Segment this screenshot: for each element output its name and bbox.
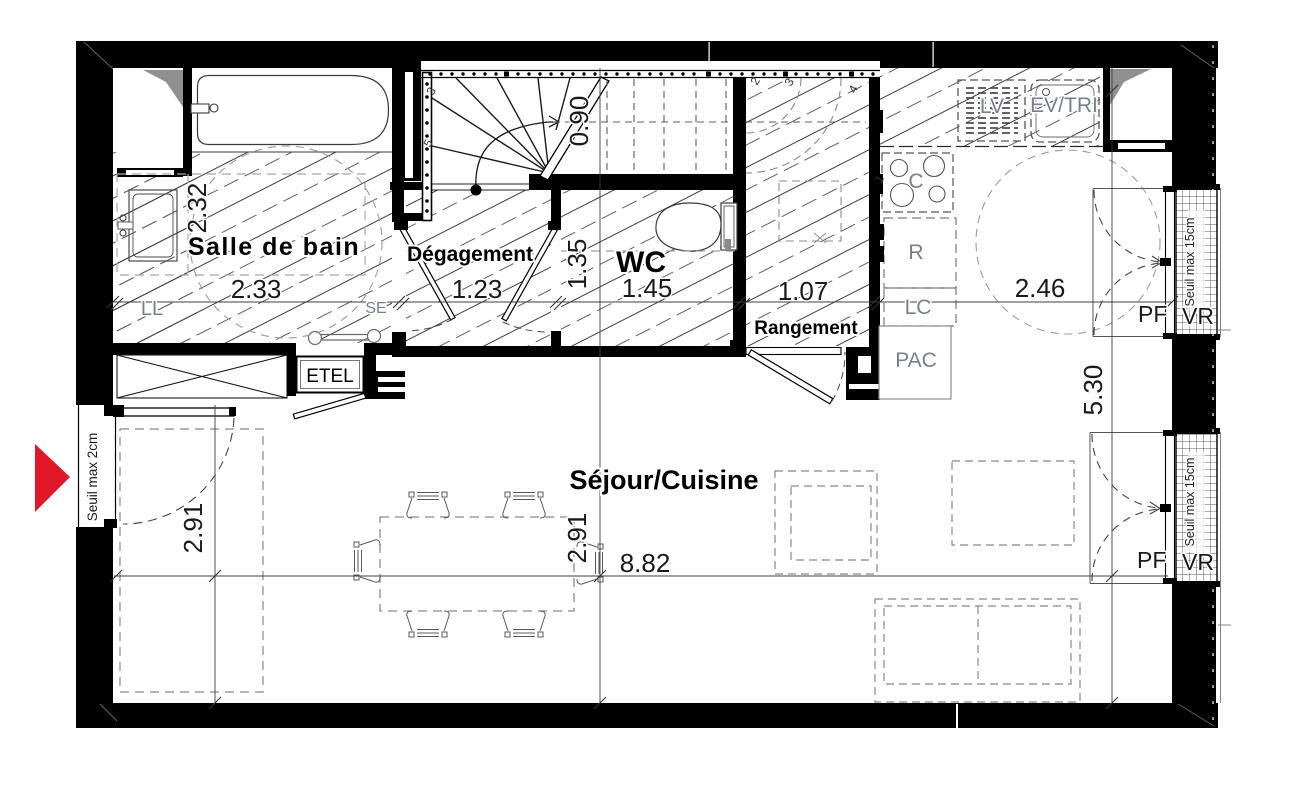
svg-text:Dégagement: Dégagement (407, 243, 533, 266)
svg-text:5.30: 5.30 (1078, 365, 1108, 416)
svg-text:Seuil max 15cm: Seuil max 15cm (1183, 458, 1197, 547)
svg-text:VR: VR (1182, 549, 1214, 575)
svg-text:1.45: 1.45 (622, 273, 673, 303)
svg-text:PF: PF (1138, 301, 1167, 327)
svg-text:LL: LL (141, 298, 163, 320)
svg-text:Séjour/Cuisine: Séjour/Cuisine (569, 465, 758, 495)
svg-text:R: R (908, 241, 923, 264)
svg-text:C: C (908, 170, 923, 193)
svg-text:LC: LC (905, 296, 932, 319)
svg-text:1.23: 1.23 (452, 274, 503, 304)
svg-text:Seuil max 15cm: Seuil max 15cm (1183, 218, 1197, 307)
svg-text:2.33: 2.33 (231, 274, 282, 304)
svg-text:1.35: 1.35 (562, 239, 592, 290)
svg-text:VR: VR (1182, 303, 1214, 329)
svg-text:EV/TRI: EV/TRI (1030, 94, 1098, 117)
svg-text:2.91: 2.91 (562, 513, 592, 564)
svg-text:PF: PF (1137, 547, 1166, 573)
svg-text:SE: SE (365, 300, 386, 317)
svg-text:PAC: PAC (895, 349, 937, 372)
svg-text:Salle de bain: Salle de bain (188, 233, 360, 261)
svg-text:Seuil max 2cm: Seuil max 2cm (85, 433, 100, 522)
svg-text:8.82: 8.82 (620, 548, 671, 578)
svg-text:2.46: 2.46 (1015, 273, 1066, 303)
svg-text:2.91: 2.91 (178, 503, 208, 554)
svg-text:2.32: 2.32 (182, 183, 212, 234)
svg-text:LV: LV (980, 95, 1004, 118)
svg-text:0.90: 0.90 (564, 96, 594, 147)
svg-text:ETEL: ETEL (306, 366, 354, 387)
svg-text:Rangement: Rangement (754, 318, 858, 339)
svg-text:1.07: 1.07 (778, 276, 829, 306)
